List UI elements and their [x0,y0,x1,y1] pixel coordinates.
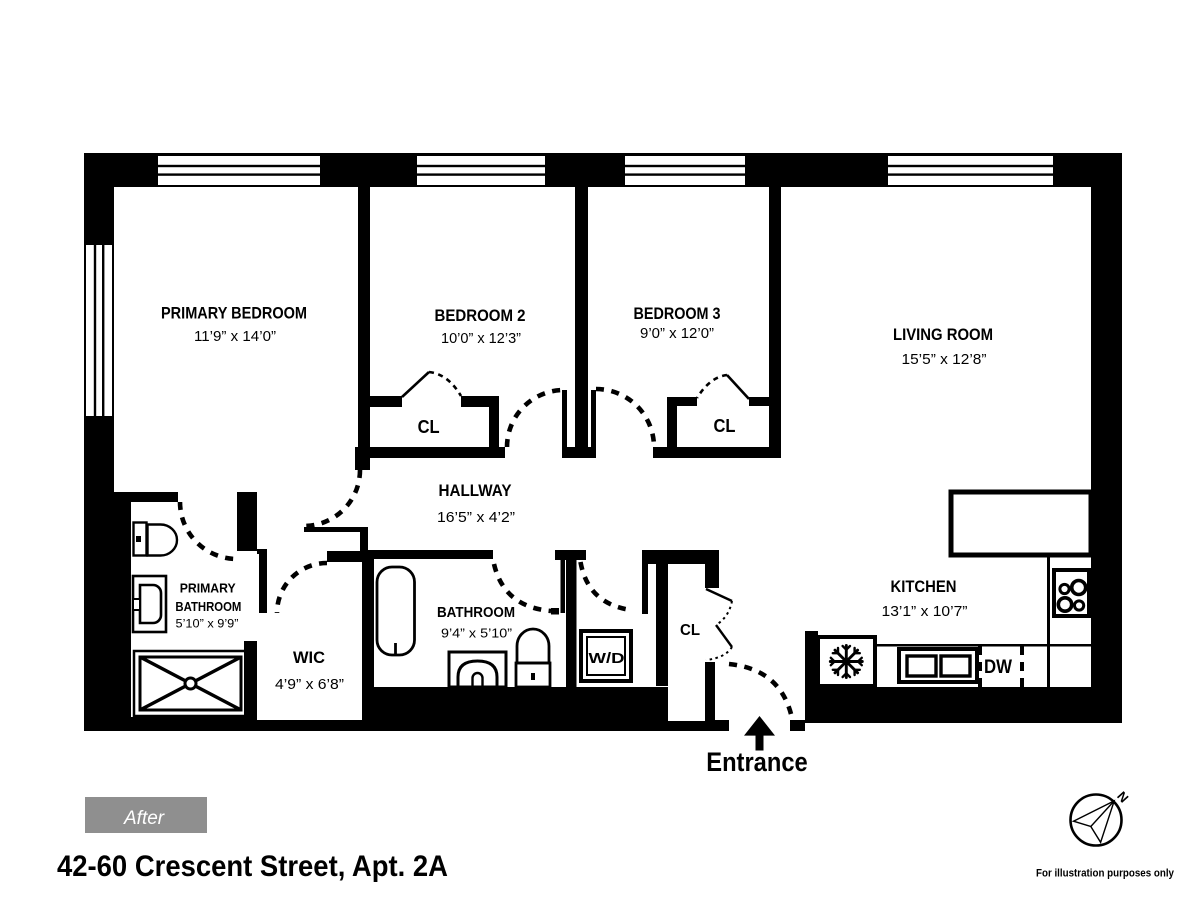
svg-text:13’1” x 10’7”: 13’1” x 10’7” [882,604,968,620]
svg-text:5’10” x 9’9”: 5’10” x 9’9” [176,619,239,631]
svg-text:16’5” x 4’2”: 16’5” x 4’2” [437,510,515,526]
svg-text:DW: DW [984,657,1012,678]
svg-text:11’9” x 14’0”: 11’9” x 14’0” [194,329,276,345]
svg-text:CL: CL [418,417,440,437]
svg-text:15’5” x 12’8”: 15’5” x 12’8” [902,352,987,368]
svg-text:For illustration purposes only: For illustration purposes only [1036,868,1175,880]
svg-text:BATHROOM: BATHROOM [437,605,515,621]
svg-text:KITCHEN: KITCHEN [891,578,957,596]
svg-text:9’0” x 12’0”: 9’0” x 12’0” [640,326,714,342]
svg-text:Entrance: Entrance [706,747,808,777]
svg-text:WIC: WIC [293,648,325,667]
svg-text:BATHROOM: BATHROOM [175,599,241,614]
svg-text:4’9” x 6’8”: 4’9” x 6’8” [275,677,344,693]
svg-text:W/D: W/D [589,650,625,667]
svg-text:CL: CL [680,622,700,639]
svg-text:10’0” x 12’3”: 10’0” x 12’3” [441,331,521,347]
svg-text:42-60 Crescent Street, Apt. 2A: 42-60 Crescent Street, Apt. 2A [57,850,448,883]
svg-text:PRIMARY BEDROOM: PRIMARY BEDROOM [161,305,307,323]
svg-text:HALLWAY: HALLWAY [439,482,512,500]
svg-text:9’4” x 5’10”: 9’4” x 5’10” [441,626,512,641]
svg-text:PRIMARY: PRIMARY [180,581,236,596]
svg-text:BEDROOM 3: BEDROOM 3 [634,305,721,323]
svg-text:BEDROOM 2: BEDROOM 2 [435,307,526,325]
svg-text:After: After [123,808,165,829]
svg-text:LIVING ROOM: LIVING ROOM [893,326,993,344]
svg-text:CL: CL [714,416,736,436]
